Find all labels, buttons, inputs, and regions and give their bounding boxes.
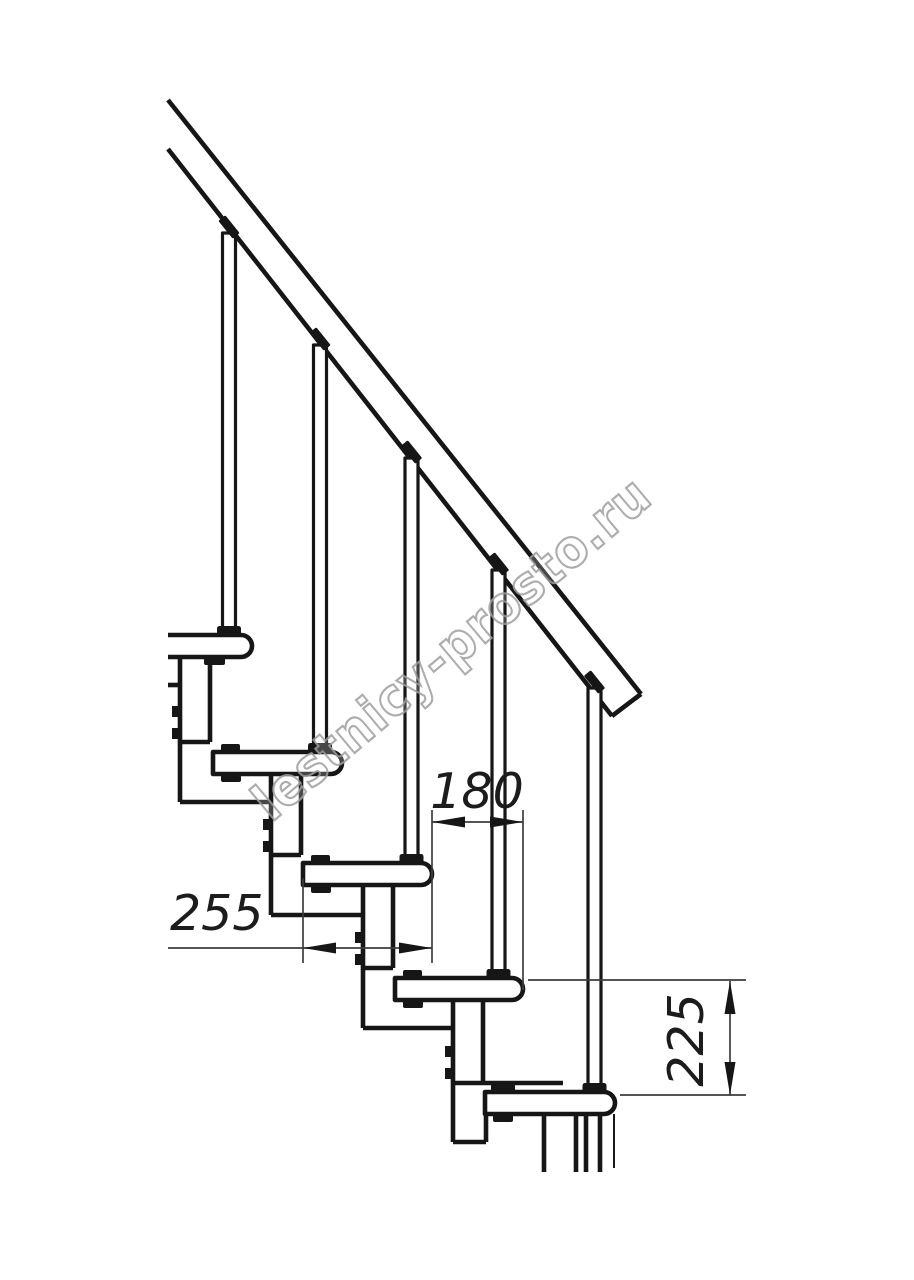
drawing-svg: 255 180 225 lestnicy-prosto.ru <box>0 0 914 1280</box>
dimension-225-arrow-up-icon <box>725 981 736 1014</box>
step-1-bolt-tab-icon <box>204 657 225 665</box>
step-2-column-bolt-icon <box>263 841 272 852</box>
dimension-255-arrow-right-icon <box>399 943 432 954</box>
step-3-tread <box>303 863 432 885</box>
step-2-bolt-tab-icon <box>221 774 241 782</box>
dimension-180-label: 180 <box>430 763 524 820</box>
dimension-180: 180 <box>430 763 524 990</box>
step-4-tread <box>395 978 523 1000</box>
dimension-255-arrow-left-icon <box>303 943 336 954</box>
dimension-225-label: 225 <box>658 993 715 1087</box>
baluster-5-tube <box>588 688 601 1092</box>
step-4-bolt-tab-icon <box>403 1000 423 1008</box>
step-5-bolt-tab-icon <box>493 1114 513 1122</box>
baluster-1-tube <box>223 233 236 635</box>
baluster-5 <box>583 670 607 1092</box>
step-3-column-bolt-icon <box>355 932 364 943</box>
baluster-1 <box>217 215 241 635</box>
step-3-column-bolt-icon <box>355 954 364 965</box>
step-5 <box>485 1084 615 1172</box>
step-1-tread <box>168 635 252 657</box>
step-4-column-bolt-icon <box>445 1046 454 1057</box>
step-1-column-bolt-icon <box>172 728 181 739</box>
step-1-column-bolt-icon <box>172 706 181 717</box>
step-5-support-column <box>544 1114 614 1172</box>
baluster-2-tube <box>314 345 327 752</box>
dimension-225: 225 <box>528 980 746 1095</box>
dimension-255-label: 255 <box>170 885 264 942</box>
dimension-225-arrow-down-icon <box>725 1062 736 1095</box>
baluster-2 <box>308 327 332 752</box>
staircase-technical-drawing: 255 180 225 lestnicy-prosto.ru <box>0 0 914 1280</box>
step-3-bolt-tab-icon <box>311 885 331 893</box>
step-5-column-lines <box>544 1114 600 1172</box>
step-4-column-bolt-icon <box>445 1068 454 1079</box>
step-5-tread <box>485 1092 615 1114</box>
